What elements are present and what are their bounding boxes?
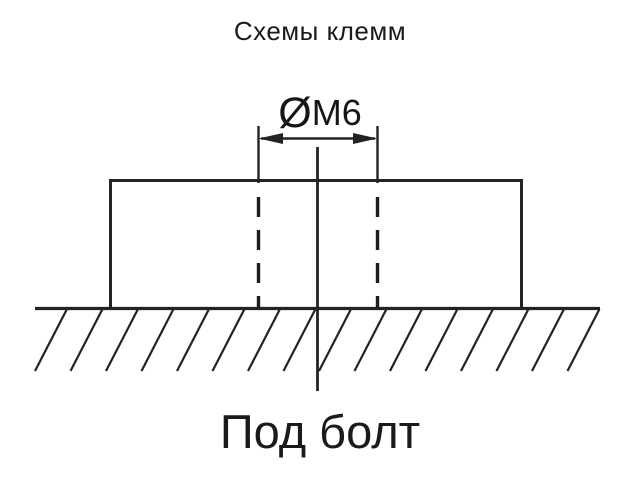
- terminal-diagram-page: Схемы клемм ØM6 Под болт: [0, 0, 640, 480]
- diameter-symbol: Ø: [278, 89, 311, 137]
- diagram-caption: Под болт: [0, 404, 640, 459]
- terminal-body-outline: [111, 181, 522, 309]
- dimension-text: M6: [312, 92, 362, 133]
- dimension-label: ØM6: [240, 92, 400, 135]
